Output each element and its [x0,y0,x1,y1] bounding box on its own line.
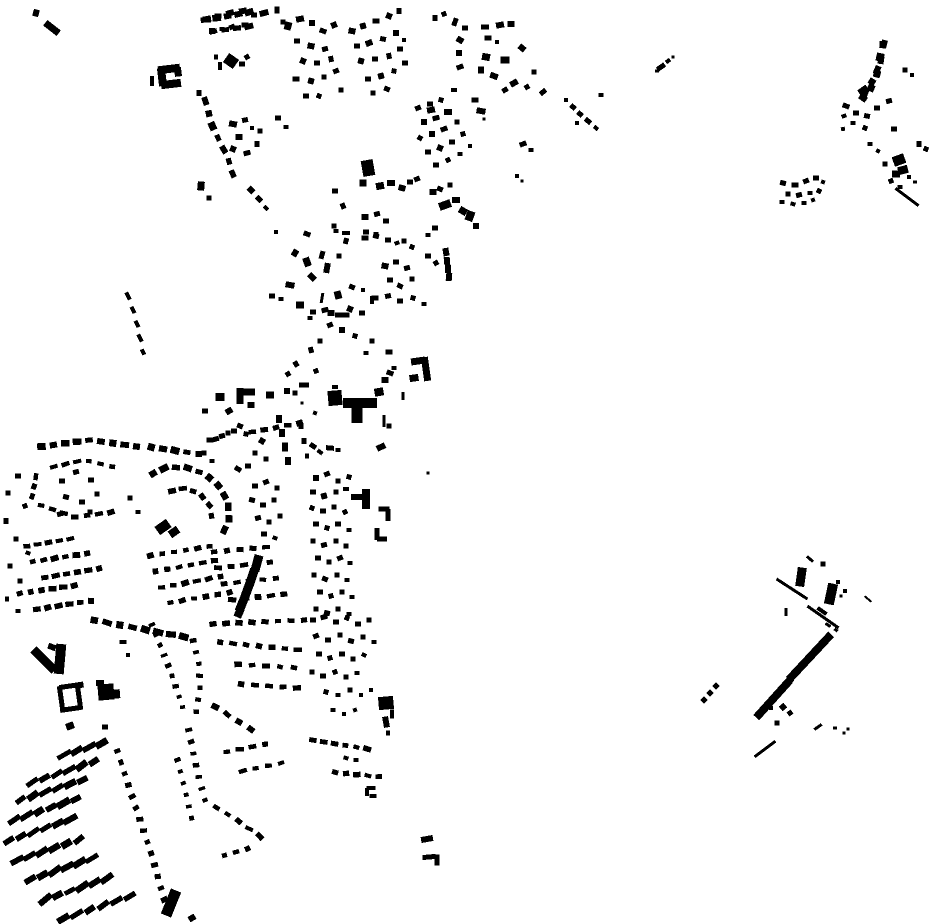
building [61,440,70,447]
building [387,424,392,429]
building [532,70,537,75]
building [318,339,323,344]
building [262,663,270,668]
building [392,366,397,370]
building [472,98,479,103]
building [262,545,270,549]
building [335,313,341,318]
building [236,134,243,140]
building [196,673,203,678]
building [456,50,462,56]
building [109,439,117,447]
building [336,607,341,612]
building [364,351,369,355]
building [207,438,214,443]
building [354,44,360,49]
building [386,53,392,60]
building [312,573,317,578]
building [120,441,129,448]
building [269,294,275,299]
isolated-l-building-south-part [435,855,440,866]
building [775,721,780,726]
building [197,181,205,191]
building [315,556,321,561]
building [196,661,202,666]
building [521,180,524,183]
building [79,500,85,505]
village-square-block-part [378,696,394,710]
cross-building-south-part [351,494,367,500]
building [430,189,437,195]
building [287,618,294,623]
building [88,510,93,515]
building [370,296,374,304]
building [37,443,46,450]
building [898,185,903,189]
building [214,565,222,570]
building [339,88,344,93]
building [266,392,274,399]
building [279,429,285,437]
building [425,150,431,155]
building [120,640,127,644]
building [193,709,199,714]
building [308,316,313,320]
building [343,487,349,491]
building [158,585,165,589]
building [261,532,267,537]
building [249,663,256,668]
building [294,39,300,44]
building [150,76,154,86]
building [344,675,349,680]
building [71,515,77,520]
building [383,415,386,427]
building [361,635,366,640]
building [372,640,377,644]
building [448,183,453,188]
cross-building-south-part [386,509,391,521]
building [529,148,534,152]
building [785,608,788,616]
building [363,230,369,235]
building [446,110,452,115]
town-l-building-part [237,388,244,404]
bracket-building-northwest-part [174,67,182,77]
building [301,402,304,405]
building [446,273,453,281]
building [264,457,269,462]
building [59,479,65,484]
building [33,473,38,480]
building [305,383,309,388]
building [426,233,431,237]
building [88,478,94,483]
building [309,20,315,26]
building [891,127,897,132]
building [6,491,11,496]
building [792,183,799,188]
building [332,224,337,229]
building [331,708,336,712]
building [210,459,215,463]
building [299,423,304,429]
building [209,28,215,34]
building [248,619,256,626]
building [386,731,390,736]
building [235,747,243,752]
building [361,288,365,292]
building [301,617,308,623]
building [234,661,242,667]
building [481,53,490,61]
building [387,180,395,186]
building [171,550,177,554]
building [385,238,391,243]
c-building-center-part [409,374,419,382]
building [314,61,320,66]
building [217,574,223,580]
building [249,545,257,551]
chunky-building-west-part [96,680,104,686]
building [347,612,352,616]
building [223,749,230,754]
building [458,152,463,156]
building [501,57,510,64]
building [276,415,282,423]
building [73,438,82,445]
building [334,539,339,544]
building [351,657,356,662]
building [672,56,675,59]
building [242,23,249,28]
building [284,388,290,394]
building [272,498,277,503]
building [268,645,275,650]
building [218,62,222,70]
building [88,598,94,604]
building [326,445,334,451]
building [243,431,249,437]
building [341,313,350,318]
building [166,631,177,638]
building [339,652,345,657]
building [305,454,309,459]
building [267,520,272,525]
building [284,423,292,428]
building [449,140,455,145]
building [262,742,268,747]
building [8,564,13,569]
building [342,231,350,235]
building [847,728,850,731]
building [332,189,338,194]
building [281,20,286,25]
building [350,595,355,599]
building [851,121,856,125]
building [195,775,202,779]
building [334,229,339,233]
building [136,817,144,822]
building [251,13,257,18]
building [38,587,45,594]
building [362,214,369,220]
church-complex-part [343,398,377,408]
building-footprint-map [0,0,930,924]
village-square-block-part [390,710,394,719]
building [843,732,846,735]
building [780,200,785,204]
building [348,561,353,565]
courtyard-building-west-part [76,682,84,689]
building [282,443,288,452]
building [220,27,225,31]
building [508,21,515,27]
church-complex-part [332,385,338,389]
building [320,509,326,514]
building [333,620,339,625]
building [15,474,21,479]
building [90,616,99,624]
building [296,302,304,309]
building [372,57,378,62]
building [86,459,92,464]
building [393,30,399,36]
building [344,544,349,549]
building [245,464,251,469]
building [136,510,141,514]
building [225,515,232,523]
building [402,61,408,66]
building [95,492,100,497]
building [462,26,468,31]
building [407,180,413,185]
building [260,503,266,508]
building [370,339,375,344]
building [170,583,176,587]
building [214,592,221,598]
building [485,36,492,41]
building [910,73,914,77]
building [211,549,218,554]
building [228,597,237,603]
building [77,600,84,605]
building [133,443,141,450]
building [410,277,415,282]
building [338,633,343,638]
building [49,441,57,448]
building [18,579,23,584]
building [235,620,243,626]
building [359,693,363,697]
building [239,62,245,67]
building [294,648,302,652]
building [265,683,273,688]
building [259,577,266,582]
building [314,607,319,612]
building [303,94,309,99]
building [348,27,356,34]
building [813,176,819,181]
building [140,828,147,833]
building [433,163,439,168]
building [877,56,884,65]
building [342,743,348,748]
building [393,260,399,265]
building [340,590,345,595]
building [116,621,124,629]
building [217,639,224,646]
building [917,141,922,147]
building [402,239,407,244]
building [226,431,231,436]
building [564,98,568,102]
building [422,302,427,306]
building [317,590,323,595]
building [215,14,222,19]
building [280,591,287,597]
building [843,589,847,593]
building [402,392,405,400]
building [371,91,376,96]
building [354,758,359,762]
building [253,451,258,456]
building [451,88,457,92]
chunky-building-west-part [112,689,121,699]
building [336,448,341,452]
building [282,646,289,651]
building [840,595,843,598]
building [336,479,341,484]
building [310,490,316,495]
building [255,594,262,600]
building [444,257,451,265]
building [383,219,389,224]
building [205,110,213,118]
building [575,121,579,125]
building [310,310,316,315]
building [445,265,451,273]
building [391,68,397,74]
building [195,451,202,457]
building [322,75,327,80]
building [332,505,337,510]
building [853,111,859,116]
building [59,584,68,590]
building [370,794,377,798]
building [279,684,286,689]
building [207,196,212,201]
dense-block-northeast-part [892,171,900,178]
building [191,596,197,600]
building [821,562,826,567]
building [347,528,352,532]
building [189,815,195,821]
building [864,113,871,119]
building [237,681,244,688]
building [5,597,9,602]
building [109,464,115,469]
building [802,201,807,205]
building [385,293,392,299]
building [274,230,278,234]
building [208,513,214,520]
building [202,409,208,414]
building [249,430,257,435]
building [278,514,283,519]
building [260,427,268,433]
building [786,192,791,197]
building [599,93,604,97]
building [380,36,387,42]
building [250,126,254,130]
building [202,451,207,456]
building [128,496,133,501]
building [242,117,249,123]
building [220,581,227,587]
building [33,606,41,612]
building [833,727,837,730]
building [325,638,331,643]
building [335,522,341,527]
building [310,618,316,623]
building [34,542,42,546]
building [432,226,438,231]
building [293,391,298,396]
building [397,8,402,14]
building [261,619,269,625]
building [381,262,389,269]
building [97,438,106,445]
building [48,586,56,592]
building [339,327,345,333]
building [343,770,350,776]
building [258,129,263,134]
building [337,254,342,259]
building [228,564,235,569]
building [478,67,484,74]
building [328,56,334,63]
building [206,544,212,549]
building [868,142,873,146]
building [836,580,840,584]
building [402,38,406,42]
building [336,693,341,697]
building [655,70,659,73]
map-background [0,0,930,924]
building [369,688,373,692]
building [252,766,259,771]
building [367,618,372,623]
building [275,619,281,623]
building [883,162,888,167]
building [65,601,74,607]
building [353,772,361,778]
building [216,393,225,401]
building [421,119,427,125]
building [197,686,202,691]
building [903,68,908,73]
church-complex-part [327,390,342,406]
building [473,223,479,229]
building [164,566,171,572]
building [251,682,259,687]
building [293,685,302,691]
building [425,254,431,259]
building [310,670,315,675]
building [386,350,393,355]
building [222,620,231,627]
